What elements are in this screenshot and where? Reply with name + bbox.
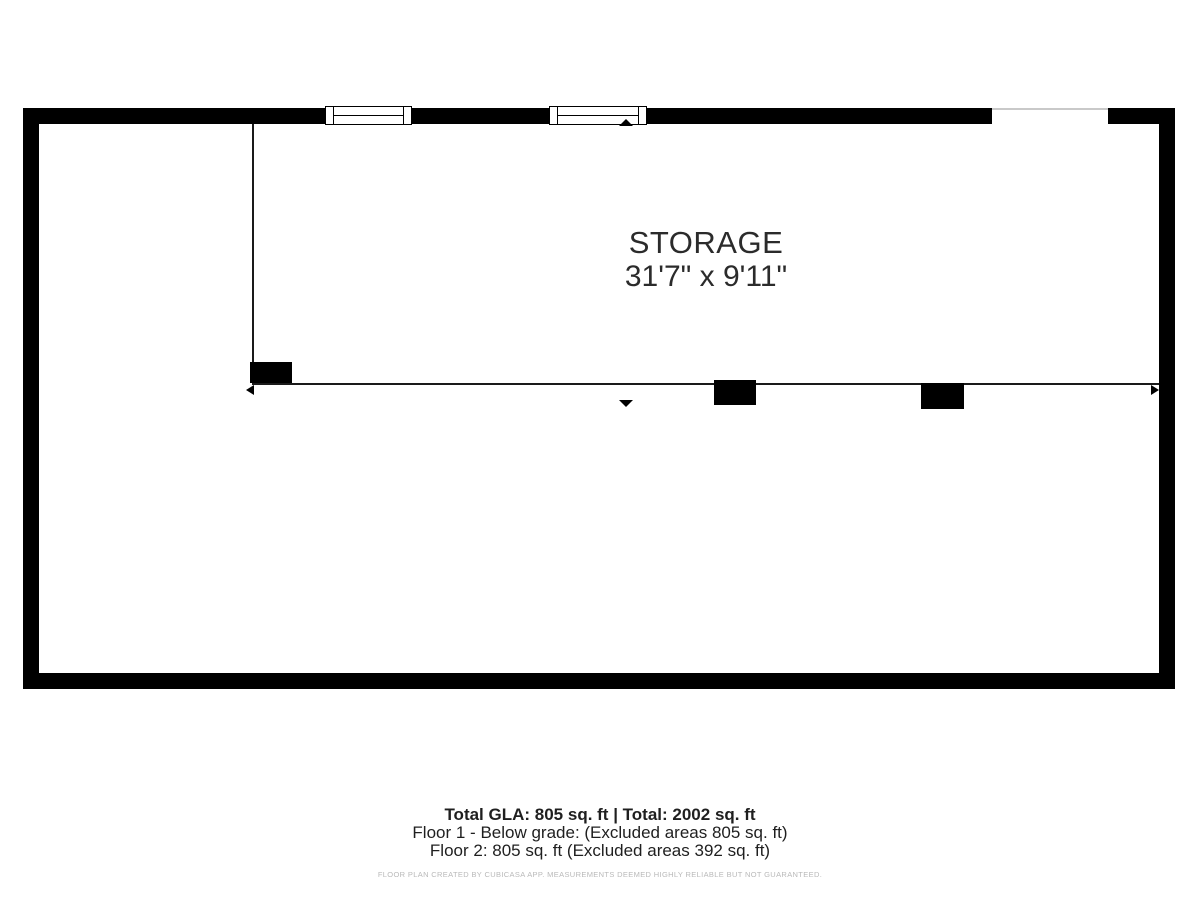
floor1-text: Floor 1 - Below grade: (Excluded areas 8… [0,824,1200,842]
wall-opening [992,108,1108,124]
room-dimensions: 31'7" x 9'11" [253,260,1159,294]
arrow-right-icon [1151,385,1159,395]
arrow-up-icon [619,119,633,126]
window-jamb [638,107,639,124]
arrow-left-icon [246,385,254,395]
floor2-text: Floor 2: 805 sq. ft (Excluded areas 392 … [0,842,1200,860]
disclaimer-text: FLOOR PLAN CREATED BY CUBICASA APP. MEAS… [0,869,1200,880]
wall-post-center [714,380,756,405]
arrow-down-icon [619,400,633,407]
interior-wall-horizontal [252,383,1159,385]
room-name: STORAGE [253,226,1159,260]
wall-post-left [250,362,292,383]
window-glass-line [558,115,638,116]
plan-summary: Total GLA: 805 sq. ft | Total: 2002 sq. … [0,806,1200,880]
room-label-block: STORAGE 31'7" x 9'11" [253,226,1159,294]
window-top-left [325,106,412,125]
window-glass-line [334,115,403,116]
building-outline [23,108,1175,689]
total-gla-text: Total GLA: 805 sq. ft | Total: 2002 sq. … [0,806,1200,824]
window-jamb [403,107,404,124]
wall-post-right [921,383,964,409]
